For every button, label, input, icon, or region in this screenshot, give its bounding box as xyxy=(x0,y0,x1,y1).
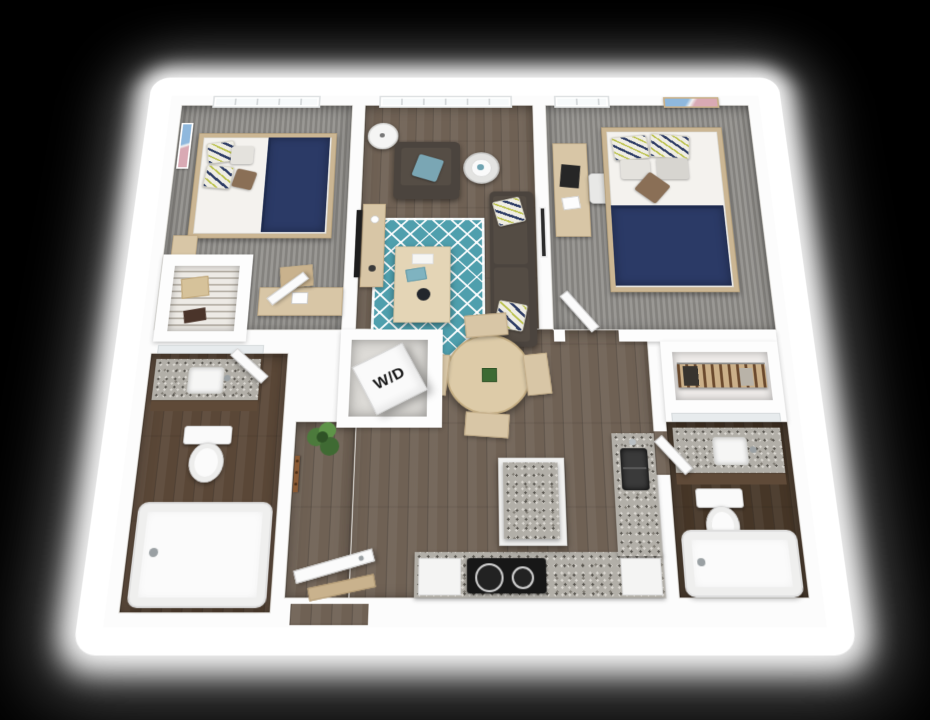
navy-blanket xyxy=(261,138,330,233)
faucet xyxy=(224,375,231,381)
hook xyxy=(295,471,298,474)
closet-1-shelving xyxy=(167,266,240,331)
sink-divider xyxy=(623,467,647,469)
bathroom-2-mirror xyxy=(671,413,781,422)
wall-segment xyxy=(618,329,777,341)
floor-plan-3d-stage: W/D xyxy=(72,78,857,656)
kitchen-island xyxy=(498,458,567,546)
vanity-cabinet xyxy=(676,473,787,485)
table-lamp-base xyxy=(477,164,484,170)
render-canvas: W/D xyxy=(0,0,930,720)
laptop xyxy=(560,164,581,188)
pillow xyxy=(202,164,234,189)
garment xyxy=(739,368,754,386)
island-granite-top xyxy=(503,462,560,538)
garment xyxy=(683,366,700,386)
potted-plant xyxy=(304,422,345,459)
dining-chair xyxy=(464,312,509,338)
closet-item xyxy=(183,307,206,323)
wall-segment xyxy=(554,329,566,341)
bedroom-2 xyxy=(546,106,776,330)
bathroom-1 xyxy=(120,354,288,613)
cooktop xyxy=(467,558,547,593)
coffee-table xyxy=(393,246,451,322)
kitchen-sink xyxy=(620,448,650,490)
floor-plan-backdrop: W/D xyxy=(72,78,857,656)
dining-chair xyxy=(464,411,510,438)
nightstand xyxy=(171,235,198,256)
side-table xyxy=(463,152,500,184)
washer-dryer-unit: W/D xyxy=(352,343,428,415)
navy-blanket xyxy=(611,205,732,285)
walk-in-closet-walls xyxy=(660,342,787,423)
vanity-cabinet xyxy=(150,400,258,411)
tub-faucet xyxy=(697,558,706,566)
bathroom-1-mirror xyxy=(157,345,264,354)
storage-box xyxy=(181,276,209,299)
decor-book xyxy=(405,267,427,282)
entry-door-opening xyxy=(289,604,368,625)
desk-papers xyxy=(561,196,581,210)
tub-faucet xyxy=(149,548,159,557)
laundry-closet-interior: W/D xyxy=(348,340,428,417)
floor-plan: W/D xyxy=(103,96,827,628)
kitchen-faucet xyxy=(629,439,636,446)
vanity-sink xyxy=(712,437,750,465)
closet-1-walls xyxy=(153,254,253,341)
tv-console xyxy=(360,204,386,287)
walk-in-closet-interior xyxy=(672,352,773,400)
console-decor xyxy=(368,265,375,272)
pillow xyxy=(230,146,254,164)
living-wall-art xyxy=(539,207,548,258)
washer-dryer-label: W/D xyxy=(371,363,409,393)
bedroom-2-window xyxy=(554,96,610,108)
bathtub xyxy=(681,530,805,598)
decor-vase xyxy=(417,288,431,301)
cabinet-front xyxy=(418,558,461,595)
bedroom-2-wall-art xyxy=(663,97,720,108)
clothes-rod xyxy=(677,363,765,365)
faucet xyxy=(749,446,757,453)
door-handle xyxy=(358,555,364,561)
armchair xyxy=(393,142,460,199)
bedroom-1-window xyxy=(212,96,321,108)
hook xyxy=(296,460,299,463)
burner xyxy=(512,566,535,589)
desk-papers xyxy=(291,292,308,304)
centerpiece-plant xyxy=(482,368,497,382)
floor-lamp-finial xyxy=(380,133,385,137)
vanity-sink xyxy=(186,367,225,394)
dining-table xyxy=(446,335,532,415)
living-room-windows xyxy=(379,96,512,108)
bathroom-2 xyxy=(666,422,808,597)
burner xyxy=(475,563,504,592)
decor-tray xyxy=(412,254,434,265)
laundry-closet-walls: W/D xyxy=(336,329,443,427)
hook xyxy=(294,483,297,486)
pillow xyxy=(656,158,689,179)
refrigerator-cabinet xyxy=(620,558,663,595)
desk xyxy=(552,143,591,236)
pillow xyxy=(650,133,690,159)
bathtub xyxy=(126,502,273,608)
pillow xyxy=(610,135,650,162)
toilet-bowl xyxy=(187,443,226,483)
console-decor xyxy=(370,216,379,224)
